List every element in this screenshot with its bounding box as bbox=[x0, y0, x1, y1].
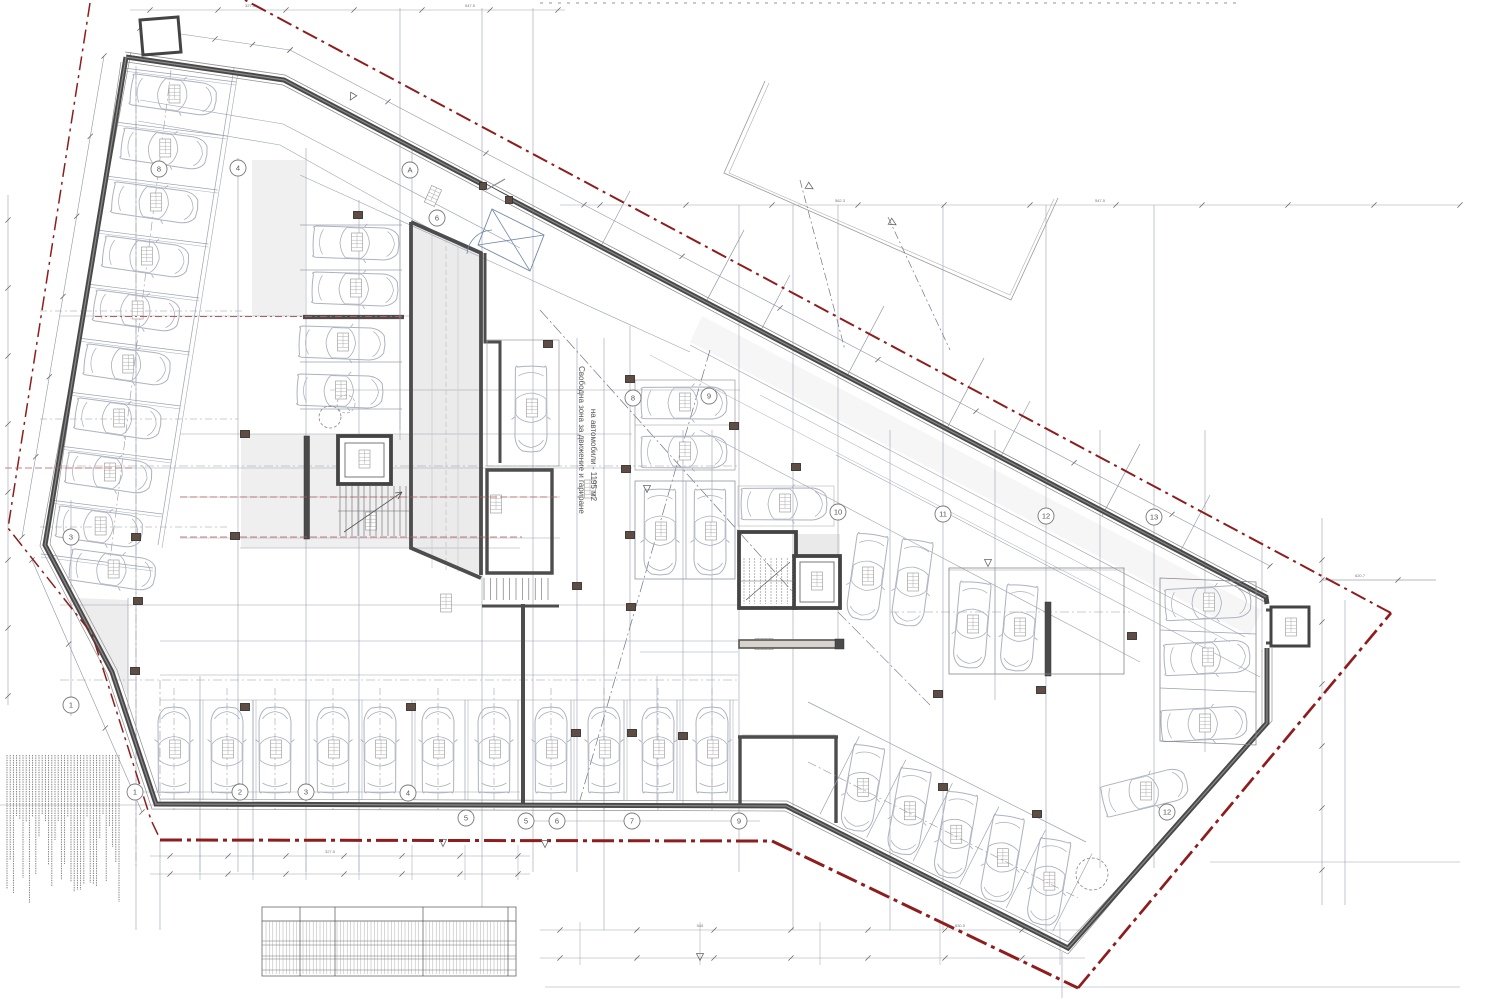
svg-text:4: 4 bbox=[236, 164, 240, 173]
svg-text:11: 11 bbox=[939, 510, 947, 519]
svg-text:12: 12 bbox=[1163, 808, 1171, 817]
svg-text:3: 3 bbox=[304, 788, 308, 797]
svg-text:547.5: 547.5 bbox=[465, 3, 476, 8]
svg-text:6: 6 bbox=[435, 214, 439, 223]
svg-text:1: 1 bbox=[133, 788, 137, 797]
svg-text:6: 6 bbox=[555, 817, 559, 826]
svg-text:327.5: 327.5 bbox=[325, 849, 336, 854]
svg-text:9: 9 bbox=[707, 392, 711, 401]
svg-text:5: 5 bbox=[464, 814, 468, 823]
svg-text:2: 2 bbox=[238, 788, 242, 797]
svg-text:620.7: 620.7 bbox=[1355, 573, 1366, 578]
svg-text:13: 13 bbox=[1150, 513, 1158, 522]
svg-text:5: 5 bbox=[524, 817, 528, 826]
svg-text:9: 9 bbox=[737, 817, 741, 826]
svg-text:A: A bbox=[407, 166, 412, 175]
svg-text:1: 1 bbox=[69, 701, 73, 710]
svg-text:12: 12 bbox=[1042, 512, 1050, 521]
svg-text:830.5: 830.5 bbox=[955, 923, 966, 928]
svg-text:8: 8 bbox=[157, 165, 161, 174]
svg-text:Свободна зона за движение и га: Свободна зона за движение и гариране bbox=[577, 366, 586, 514]
svg-text:547.5: 547.5 bbox=[1095, 198, 1106, 203]
svg-text:8: 8 bbox=[631, 394, 635, 403]
svg-text:7: 7 bbox=[630, 817, 634, 826]
svg-text:3: 3 bbox=[69, 533, 73, 542]
svg-text:545: 545 bbox=[697, 923, 704, 928]
svg-text:4: 4 bbox=[406, 789, 410, 798]
svg-text:562.3: 562.3 bbox=[835, 198, 846, 203]
svg-text:на автомобили - 1195 м2: на автомобили - 1195 м2 bbox=[589, 409, 598, 502]
svg-text:10: 10 bbox=[834, 508, 842, 517]
